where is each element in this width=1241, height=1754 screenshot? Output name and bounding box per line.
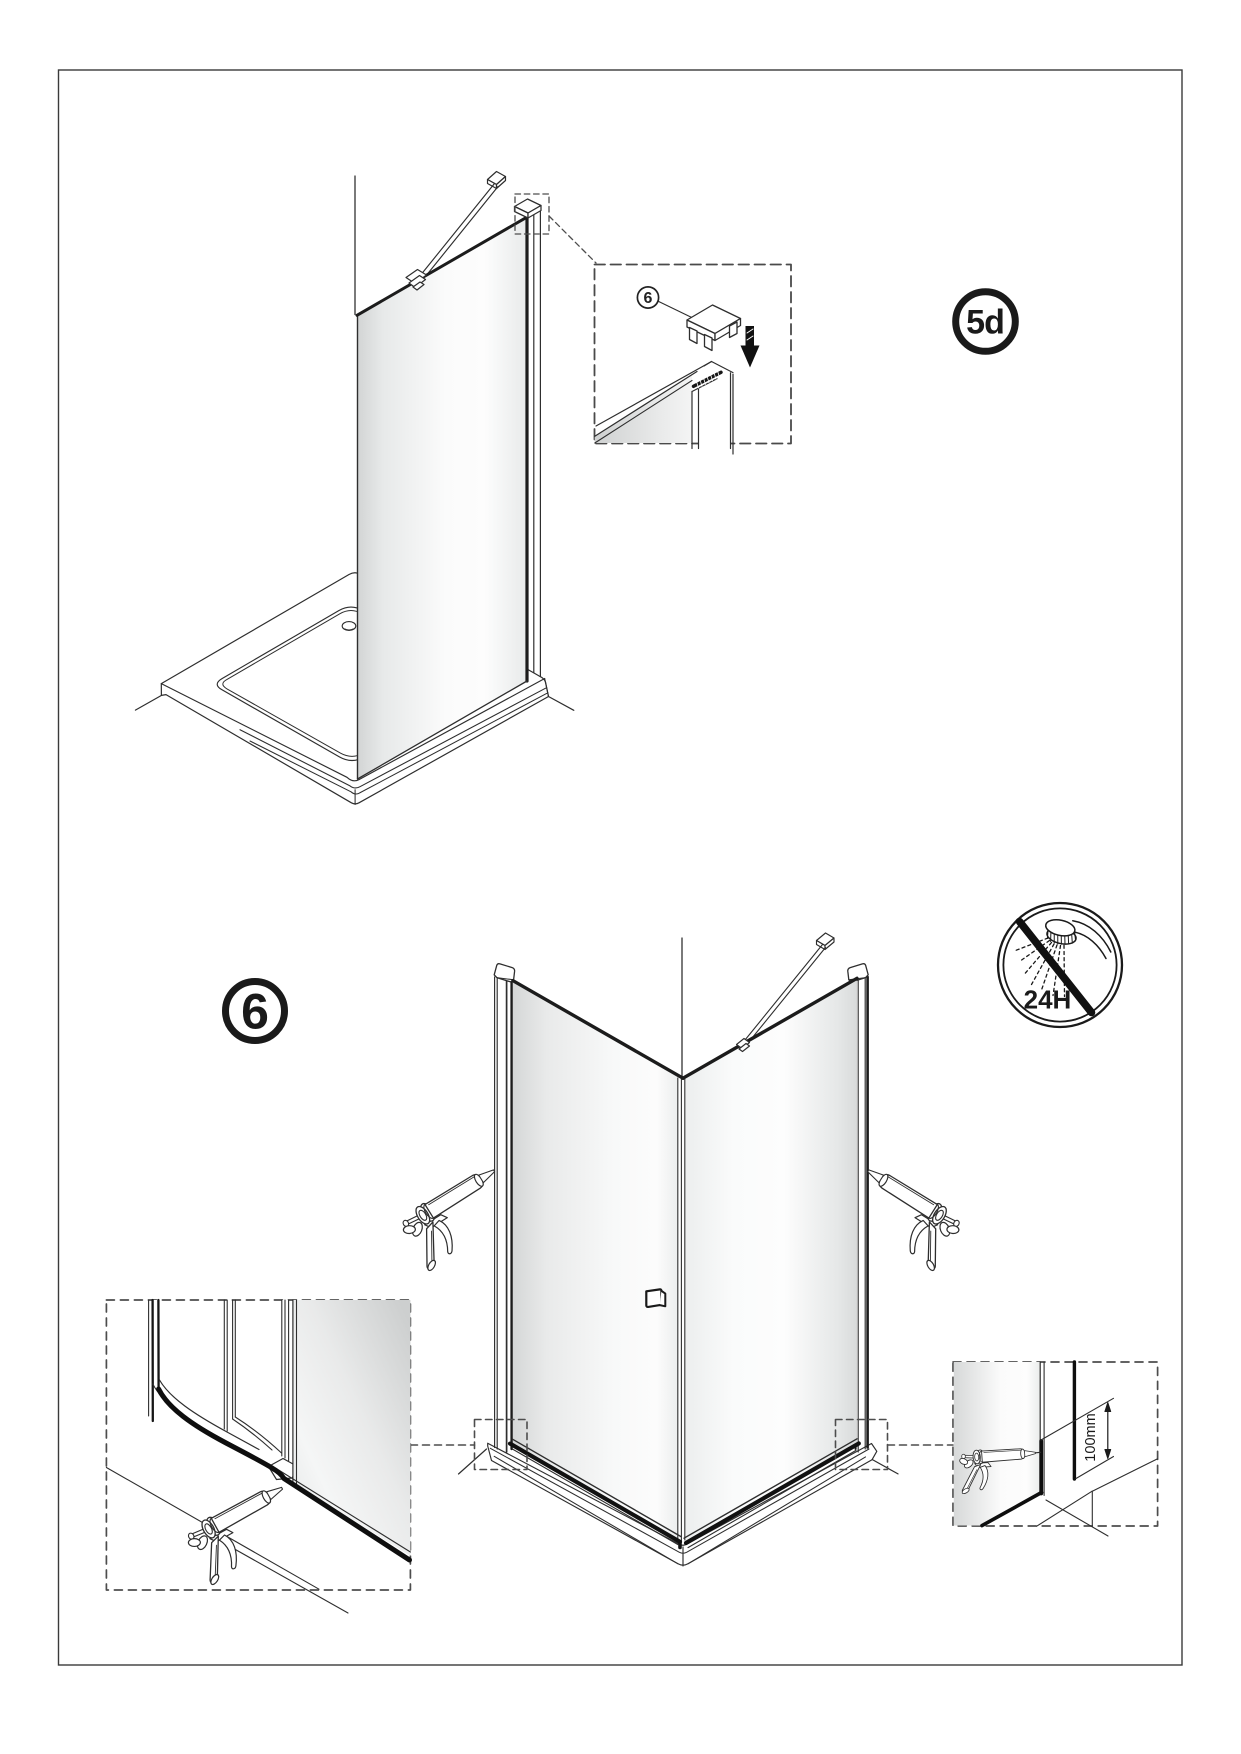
svg-text:6: 6	[241, 984, 269, 1040]
svg-text:100mm: 100mm	[1083, 1413, 1099, 1461]
svg-text:24H: 24H	[1024, 985, 1072, 1015]
svg-text:5d: 5d	[966, 304, 1004, 342]
svg-text:6: 6	[644, 290, 653, 307]
